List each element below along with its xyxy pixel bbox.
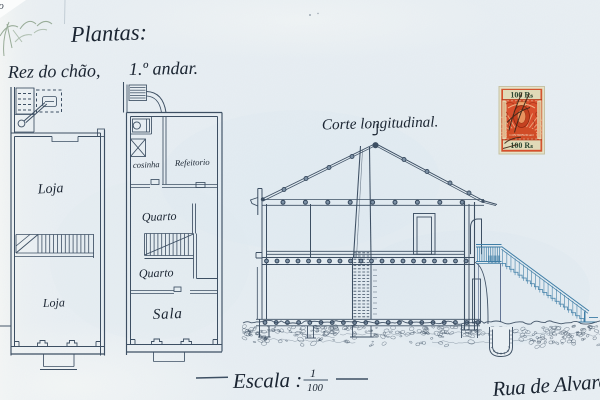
svg-text:Loja: Loja xyxy=(36,181,63,197)
svg-text:Quarto: Quarto xyxy=(142,209,177,224)
svg-text:Rez do chão,: Rez do chão, xyxy=(7,60,101,82)
svg-text:1.º andar.: 1.º andar. xyxy=(129,58,198,79)
svg-text:to: to xyxy=(0,1,4,12)
svg-text:100: 100 xyxy=(307,383,324,394)
svg-text:Sala: Sala xyxy=(153,306,183,323)
svg-text:CONTRIBUICAO: CONTRIBUICAO xyxy=(509,133,534,137)
svg-text:cosinha: cosinha xyxy=(133,159,160,170)
svg-text:1: 1 xyxy=(310,366,316,380)
svg-text:Plantas:: Plantas: xyxy=(69,19,147,47)
svg-text:Loja: Loja xyxy=(42,295,65,310)
svg-text:Corte longitudinal.: Corte longitudinal. xyxy=(322,113,439,133)
svg-text:Refeitorio: Refeitorio xyxy=(174,157,211,168)
svg-text:100 Rₛ: 100 Rₛ xyxy=(510,91,533,100)
svg-text:Escala :: Escala : xyxy=(232,368,303,393)
svg-text:Quarto: Quarto xyxy=(139,265,174,280)
